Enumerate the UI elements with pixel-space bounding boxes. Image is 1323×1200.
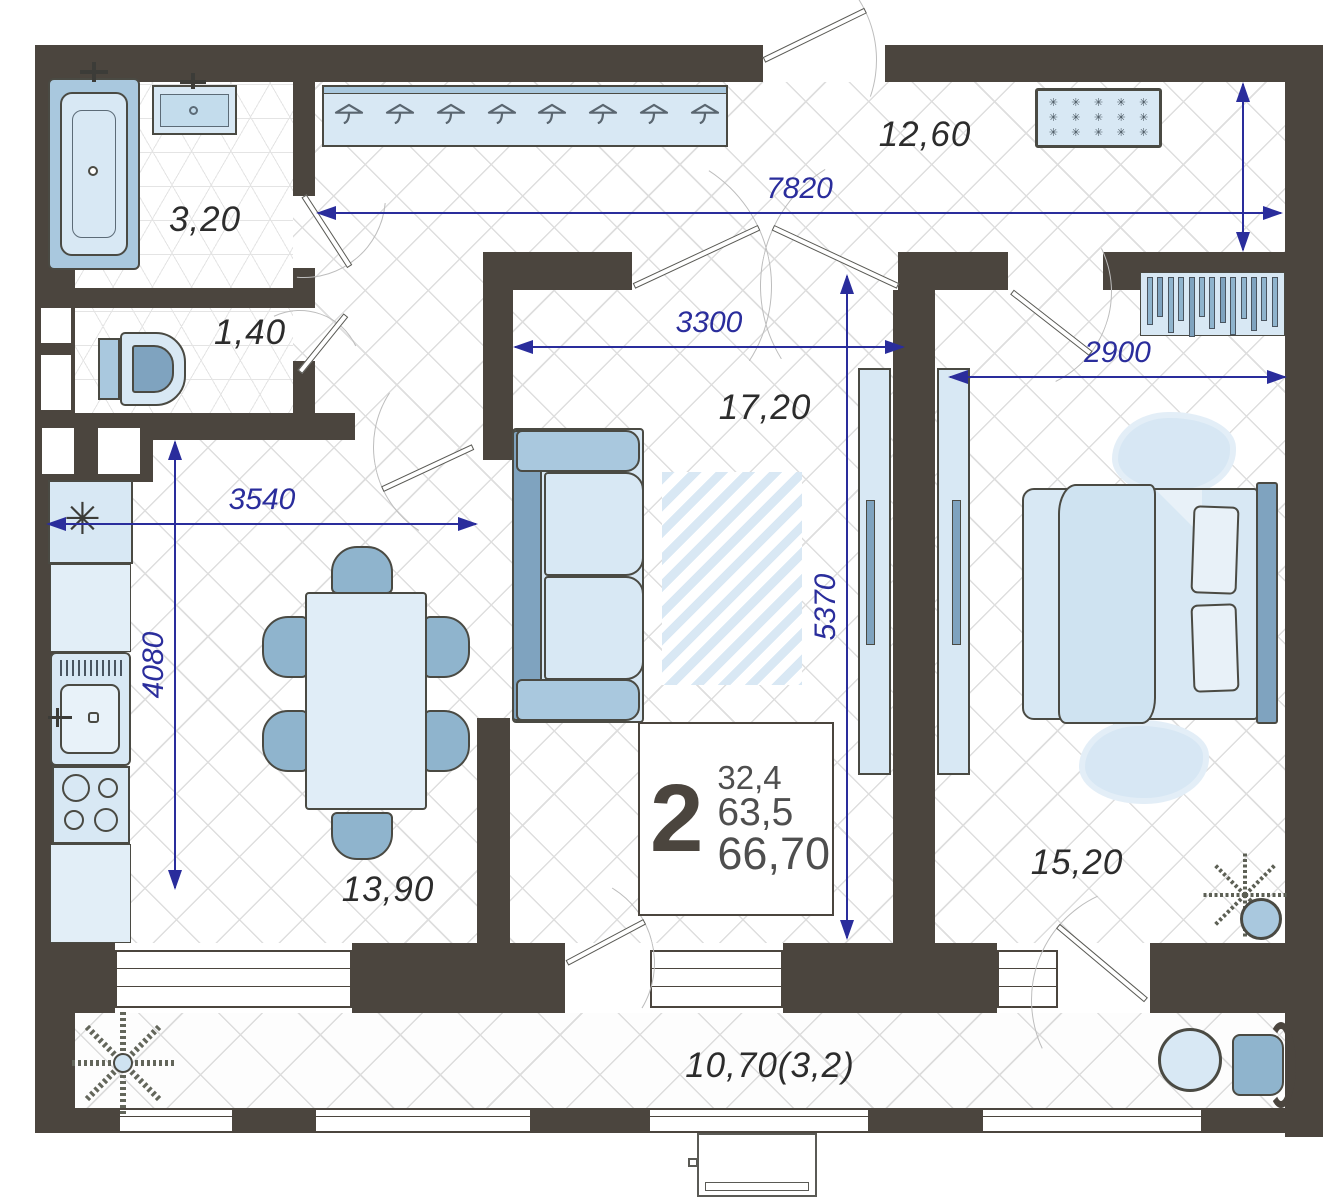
dining-chair-right-1 [424, 616, 470, 678]
floor-plan: ✳✳✳✳✳✳✳✳✳✳✳✳✳✳✳ ✳ [0, 0, 1323, 1200]
apartment-info-box: 2 32,4 63,5 66,70 [638, 722, 834, 916]
bedroom-plant-pot [1240, 898, 1282, 940]
doormat: ✳✳✳✳✳✳✳✳✳✳✳✳✳✳✳ [1035, 88, 1162, 148]
dim-label-7820: 7820 [766, 172, 833, 206]
coat-rack [322, 85, 728, 147]
dim-living-depth: 5370 [846, 276, 848, 938]
bathtub-faucet-icon-v [92, 62, 96, 82]
ac-unit-bracket [688, 1158, 698, 1167]
kitchen-sink-drain [88, 712, 99, 723]
bathtub-drain [88, 166, 98, 176]
arrow-down-icon [1236, 232, 1250, 252]
bed-blanket [1058, 484, 1156, 724]
label-balcony: 10,70(3,2) [640, 1046, 900, 1086]
ac-unit-vent [705, 1182, 809, 1191]
toilet-bowl-inner [132, 345, 174, 393]
arrow-left-icon [46, 517, 66, 531]
dining-chair-bottom [331, 812, 393, 860]
label-living: 17,20 [690, 388, 840, 428]
stove [52, 766, 130, 844]
dim-label-3540: 3540 [229, 483, 296, 517]
kitchen-sink-vent [60, 660, 122, 676]
arrow-down-icon [168, 870, 182, 890]
sink-drain [189, 106, 198, 115]
stove-burner-3 [64, 810, 84, 830]
dim-hallway-width: 7820 [318, 212, 1281, 214]
arrow-up-icon [1236, 82, 1250, 102]
toilet-tank [98, 338, 120, 400]
room-count: 2 [650, 776, 703, 862]
balcony-table [1158, 1028, 1222, 1092]
hangers-row [332, 101, 722, 132]
vent-shaft-2 [41, 355, 71, 410]
area-total: 66,70 [717, 832, 830, 876]
wall-bath-wc-divider [35, 288, 315, 308]
dim-kitchen-depth: 4080 [174, 442, 176, 888]
sofa-armrest-bottom [516, 679, 640, 721]
wall-top-right [885, 45, 1323, 82]
dim-bedroom-width: 2900 [950, 376, 1285, 378]
dim-kitchen-width: 3540 [48, 523, 476, 525]
area-without-balcony: 63,5 [717, 794, 830, 832]
dim-hall-height-unlabeled [1242, 84, 1244, 250]
fridge-snowflake-icon: ✳ [64, 494, 101, 545]
bed-headboard [1256, 482, 1278, 724]
dim-label-4080: 4080 [137, 632, 171, 699]
stove-burner-4 [94, 808, 118, 832]
doormat-dots: ✳✳✳✳✳✳✳✳✳✳✳✳✳✳✳ [1042, 95, 1155, 141]
kitchen-counter-2 [50, 844, 131, 943]
sofa-armrest-top [516, 430, 640, 472]
area-living-total: 32,4 [717, 762, 830, 794]
kitchen-sink-unit [50, 652, 131, 766]
arrow-right-icon [458, 517, 478, 531]
arrow-right-icon [1267, 370, 1287, 384]
kitchen-counter-1 [50, 564, 131, 652]
wall-balcony-2 [783, 943, 997, 1013]
dining-chair-left-1 [262, 616, 308, 678]
wardrobe-living-handle [866, 500, 875, 645]
label-kitchen: 13,90 [313, 870, 463, 910]
dim-label-2900: 2900 [1084, 336, 1151, 370]
vent-shaft-1 [41, 308, 71, 343]
stove-burner-2 [98, 778, 118, 798]
arrow-left-icon [316, 206, 336, 220]
sofa-back [512, 430, 542, 721]
ac-unit [697, 1133, 817, 1197]
arrow-up-icon [840, 274, 854, 294]
bed-pillow-1 [1190, 505, 1239, 595]
dining-chair-left-2 [262, 710, 308, 772]
balcony-glazing [35, 1108, 1308, 1133]
label-wc: 1,40 [175, 313, 325, 353]
slatted-rack [1140, 272, 1285, 336]
dim-label-5370: 5370 [809, 574, 843, 641]
sink-faucet-icon-v [191, 73, 195, 89]
coat-rack-rail [324, 87, 726, 94]
rail-wall-4 [868, 1108, 983, 1133]
arrow-right-icon [885, 340, 905, 354]
living-window [650, 950, 783, 1008]
stove-burner-1 [62, 774, 90, 802]
sofa-cushion-1 [544, 472, 644, 576]
arrow-up-icon [168, 440, 182, 460]
slatted-rack-slats [1147, 277, 1278, 337]
sofa-cushion-2 [544, 576, 644, 680]
dining-chair-right-2 [424, 710, 470, 772]
rail-wall-2 [232, 1108, 316, 1133]
kitchen-faucet-icon-v [56, 708, 59, 727]
dining-chair-top [331, 546, 393, 594]
arrow-left-icon [513, 340, 533, 354]
label-bedroom: 15,20 [1002, 843, 1152, 883]
label-bathroom: 3,20 [130, 200, 280, 240]
living-rug [662, 472, 802, 685]
dining-table [305, 592, 427, 810]
balcony-chair-seat [1232, 1034, 1284, 1096]
bed-pillow-2 [1190, 603, 1239, 693]
vent-shaft-4 [98, 428, 140, 474]
wardrobe-bedroom-handle [952, 500, 961, 645]
arrow-down-icon [840, 920, 854, 940]
balcony-fern-icon [58, 998, 188, 1128]
arrow-right-icon [1263, 206, 1283, 220]
kitchen-faucet-icon [48, 716, 72, 719]
arrow-left-icon [948, 370, 968, 384]
label-hallway: 12,60 [850, 115, 1000, 155]
dim-label-3300: 3300 [676, 306, 743, 340]
dim-living-width: 3300 [515, 346, 903, 348]
vent-shaft-3 [42, 428, 74, 474]
rail-wall-3 [530, 1108, 650, 1133]
